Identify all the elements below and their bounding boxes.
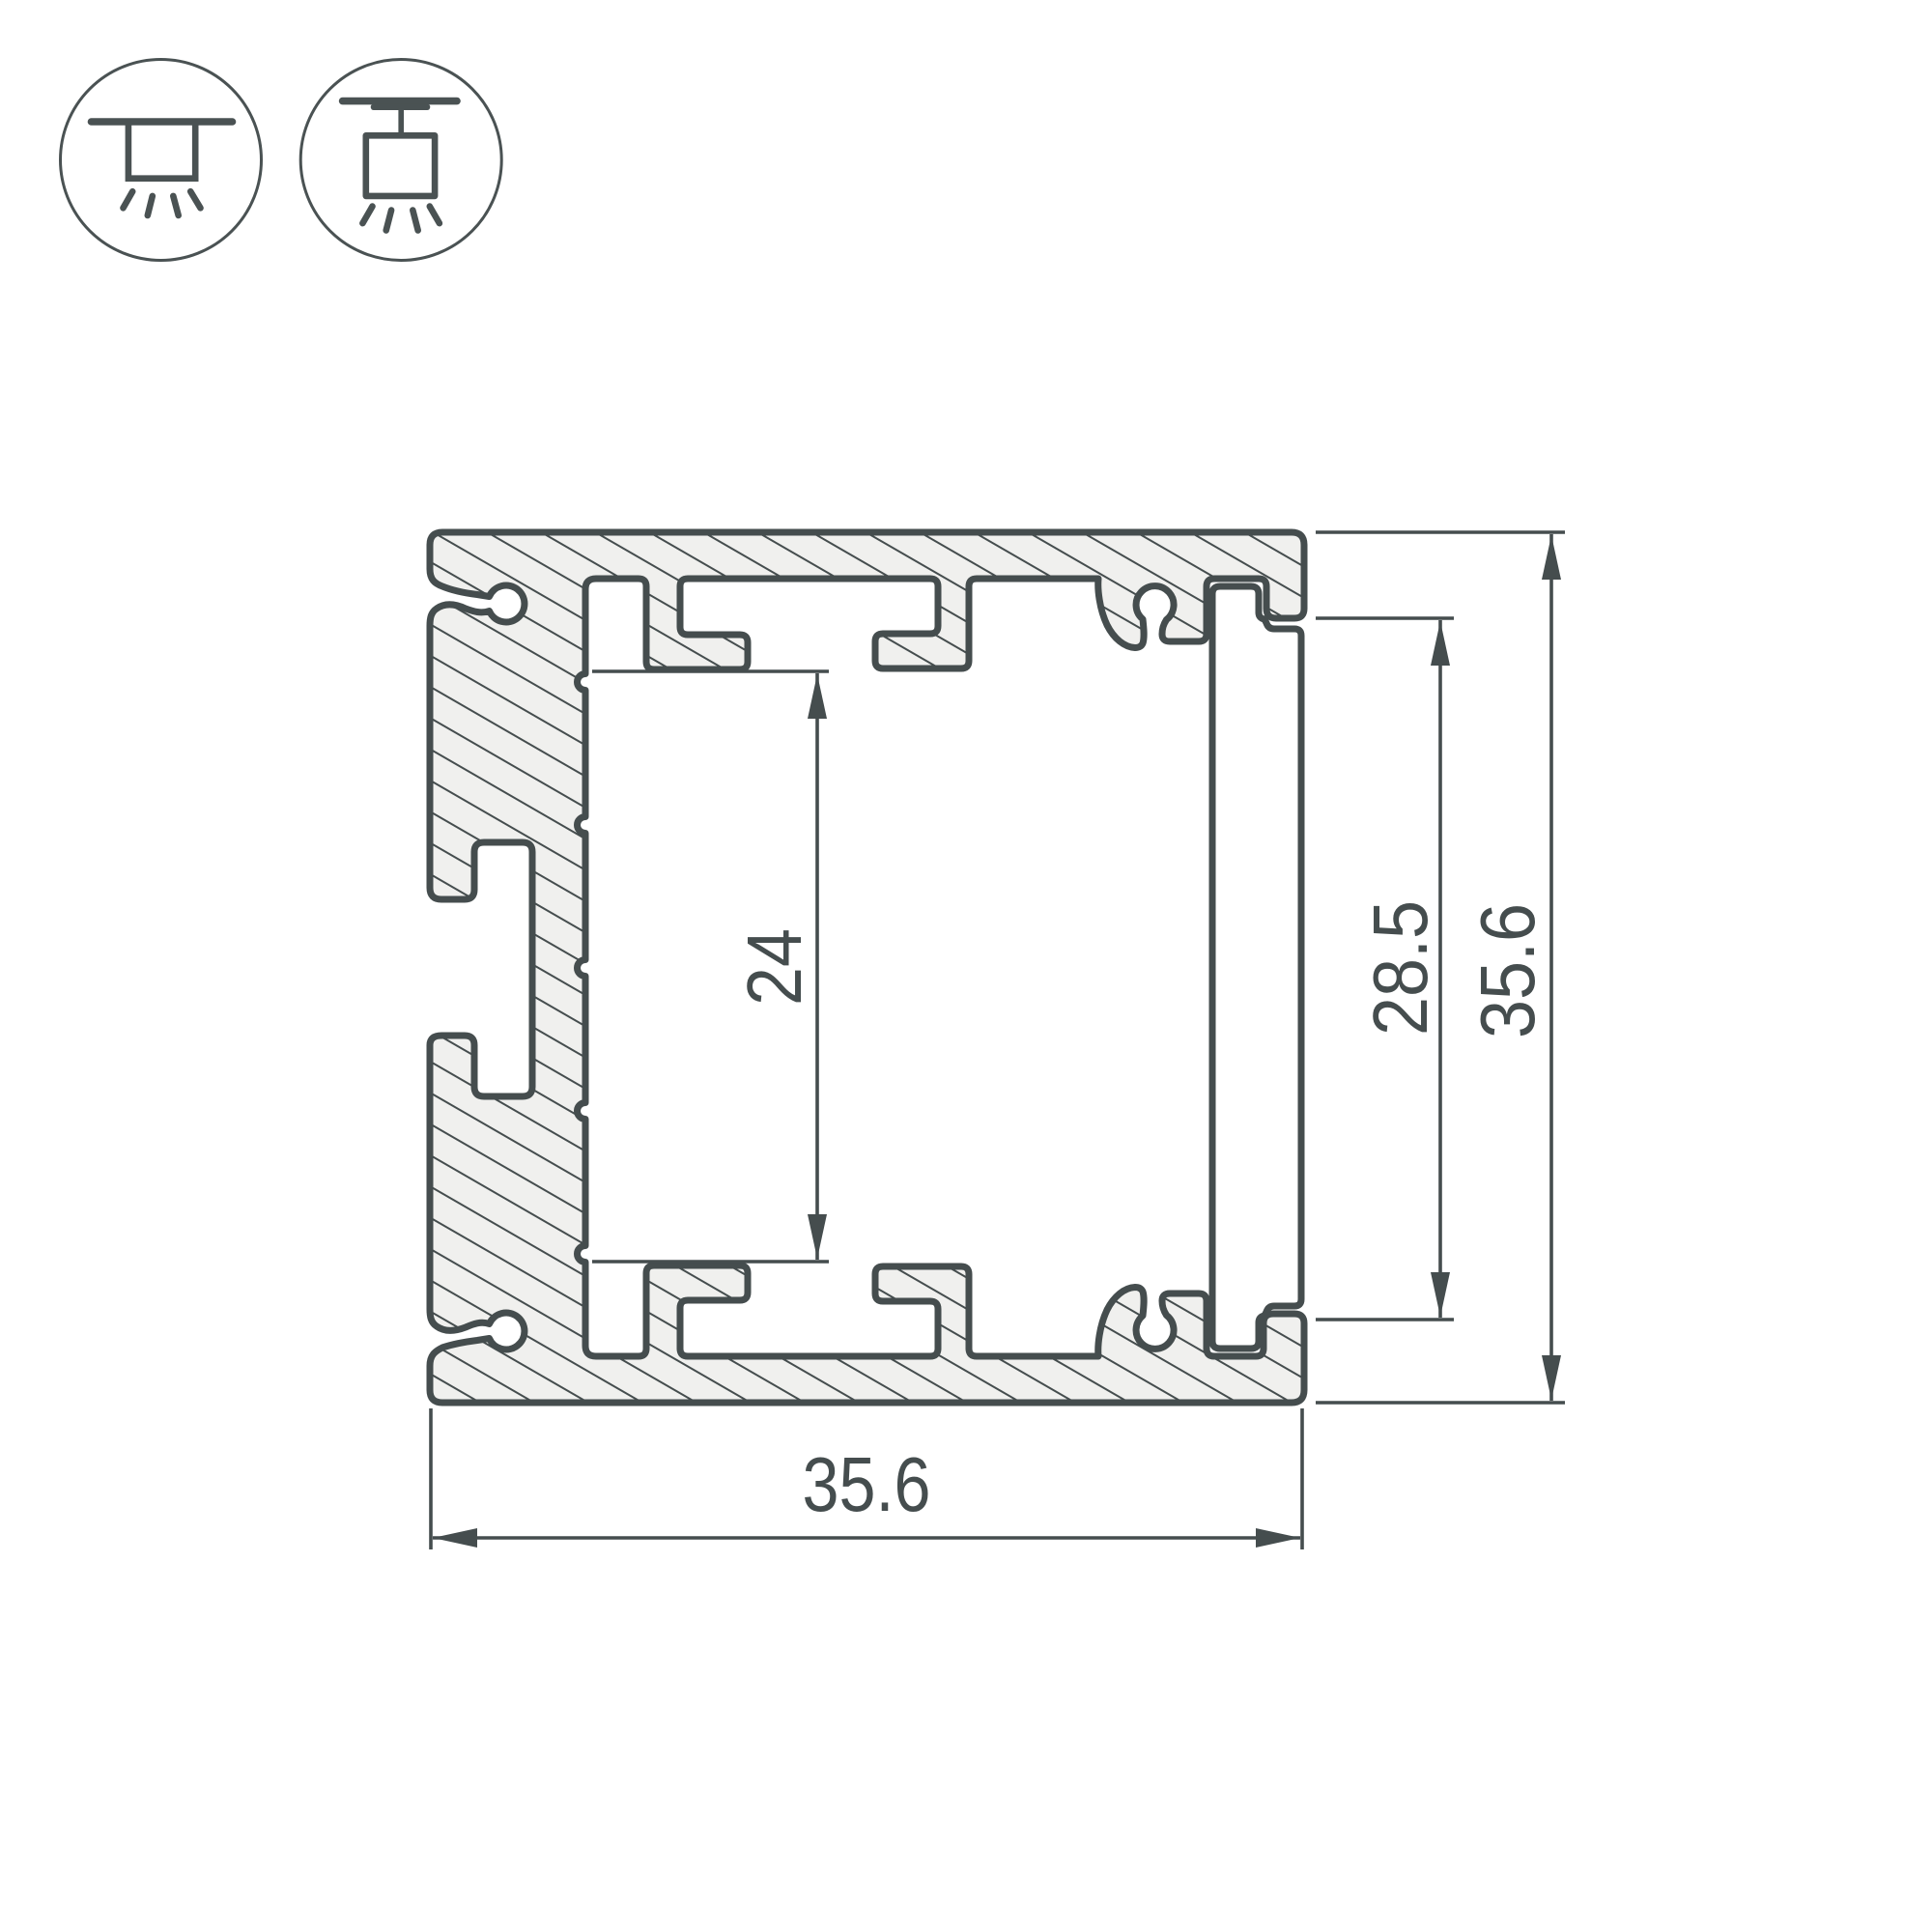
svg-text:35.6: 35.6 [803,1441,931,1527]
svg-text:24: 24 [731,928,817,1006]
svg-text:35.6: 35.6 [1464,903,1550,1038]
svg-text:28.5: 28.5 [1357,900,1443,1036]
